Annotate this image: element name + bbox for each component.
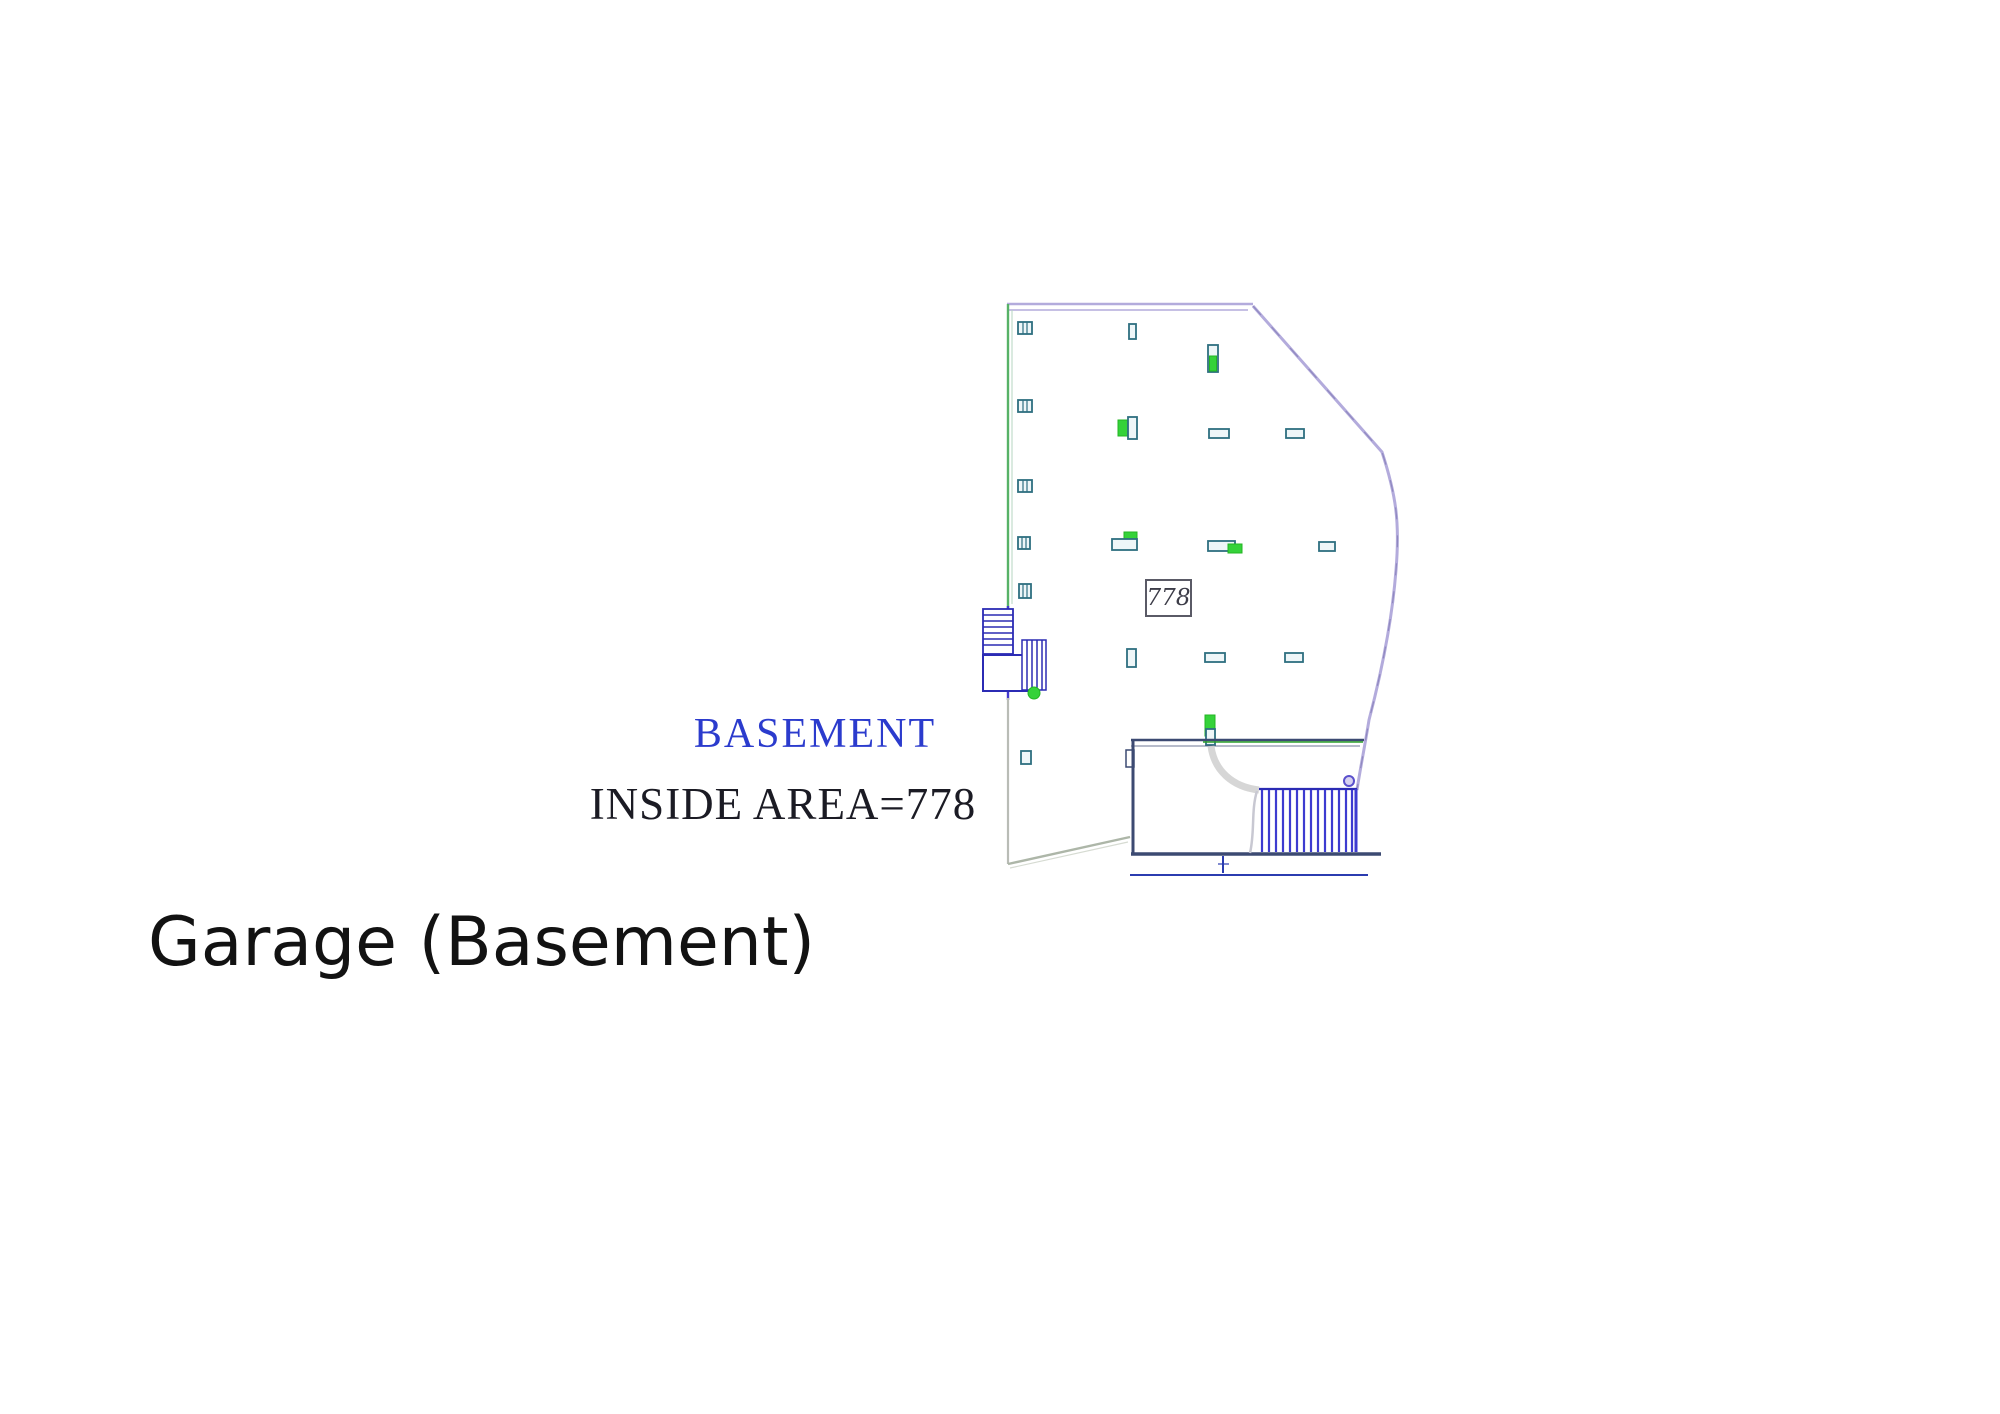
column <box>1019 584 1031 598</box>
column-green <box>1112 532 1137 550</box>
interior-columns <box>1112 324 1335 745</box>
column <box>1286 429 1304 438</box>
column-green <box>1208 345 1218 372</box>
exterior-wall-left <box>1008 304 1012 864</box>
column-green <box>1118 417 1137 439</box>
column <box>1205 653 1225 662</box>
column <box>1319 542 1335 551</box>
column <box>1021 751 1031 764</box>
column <box>1127 649 1136 667</box>
area-tag-value: 778 <box>1147 585 1191 611</box>
staircase <box>983 609 1046 699</box>
stair-marker-dot <box>1028 687 1040 699</box>
column-green <box>1208 541 1242 553</box>
column <box>1018 322 1032 334</box>
column <box>1285 653 1303 662</box>
inside-area-label: INSIDE AREA=778 <box>583 778 983 830</box>
exterior-wall-bottom-diagonal <box>1008 837 1130 868</box>
column <box>1018 537 1030 549</box>
column <box>1018 400 1032 412</box>
column <box>1209 429 1229 438</box>
floorplan-drawing <box>0 0 2000 1414</box>
drawing-sheet: 778 BASEMENT INSIDE AREA=778 Garage (Bas… <box>0 0 2000 1414</box>
ramp-pivot-circle <box>1344 776 1354 786</box>
garage-entry-room <box>1126 740 1381 855</box>
door-swing-arc <box>1211 746 1259 790</box>
basement-label: BASEMENT <box>640 710 990 758</box>
exterior-wall-top <box>1007 304 1253 310</box>
area-tag-box: 778 <box>1145 579 1192 617</box>
dimension-line <box>1130 856 1368 875</box>
ramp-hatch <box>1250 789 1357 853</box>
column <box>1018 480 1032 492</box>
page-caption: Garage (Basement) <box>148 903 815 982</box>
column <box>1129 324 1136 339</box>
